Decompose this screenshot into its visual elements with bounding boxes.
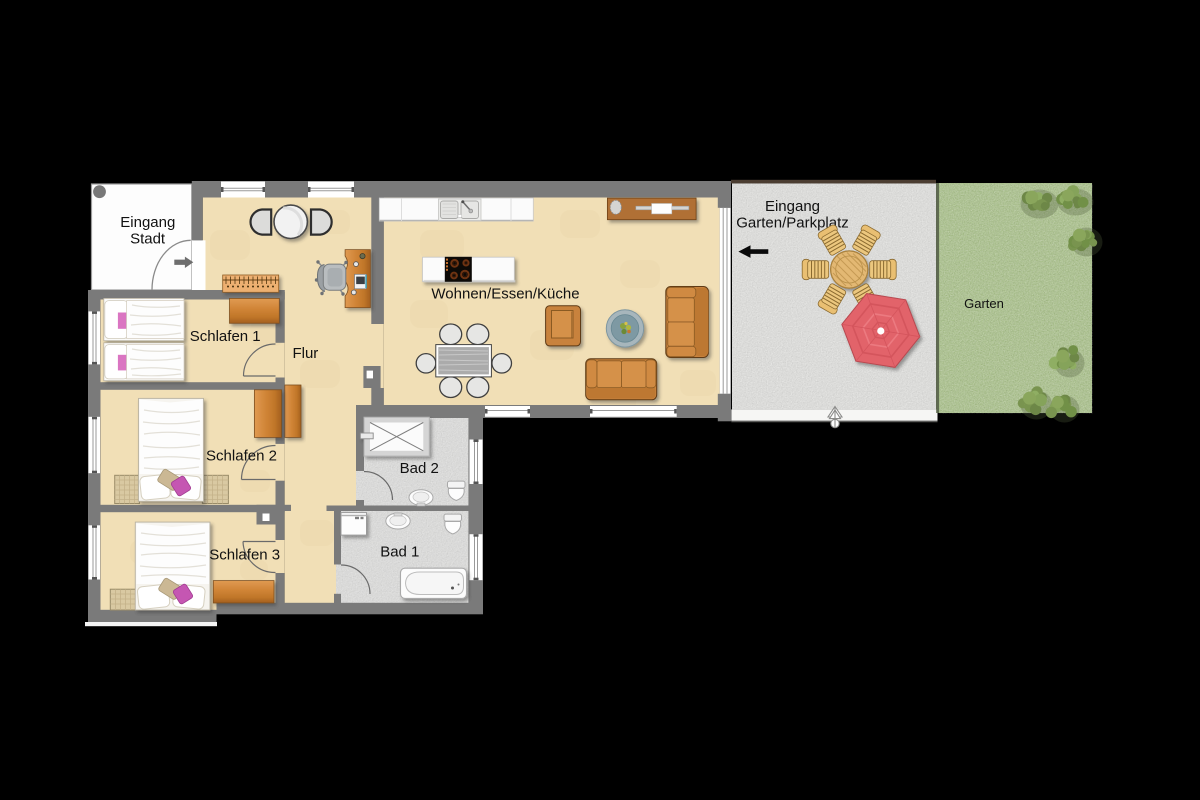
svg-text:Schlafen 1: Schlafen 1 — [190, 328, 261, 345]
svg-text:Bad 2: Bad 2 — [400, 460, 439, 477]
svg-text:Wohnen/Essen/Küche: Wohnen/Essen/Küche — [431, 286, 579, 303]
svg-text:Garten: Garten — [964, 296, 1004, 311]
svg-text:Flur: Flur — [292, 345, 318, 362]
svg-text:Eingang: Eingang — [120, 214, 175, 231]
svg-text:Eingang: Eingang — [765, 198, 820, 215]
svg-text:Bad 1: Bad 1 — [380, 544, 419, 561]
svg-text:Schlafen 3: Schlafen 3 — [209, 547, 280, 564]
svg-text:Stadt: Stadt — [130, 231, 166, 248]
svg-text:Schlafen 2: Schlafen 2 — [206, 448, 277, 465]
